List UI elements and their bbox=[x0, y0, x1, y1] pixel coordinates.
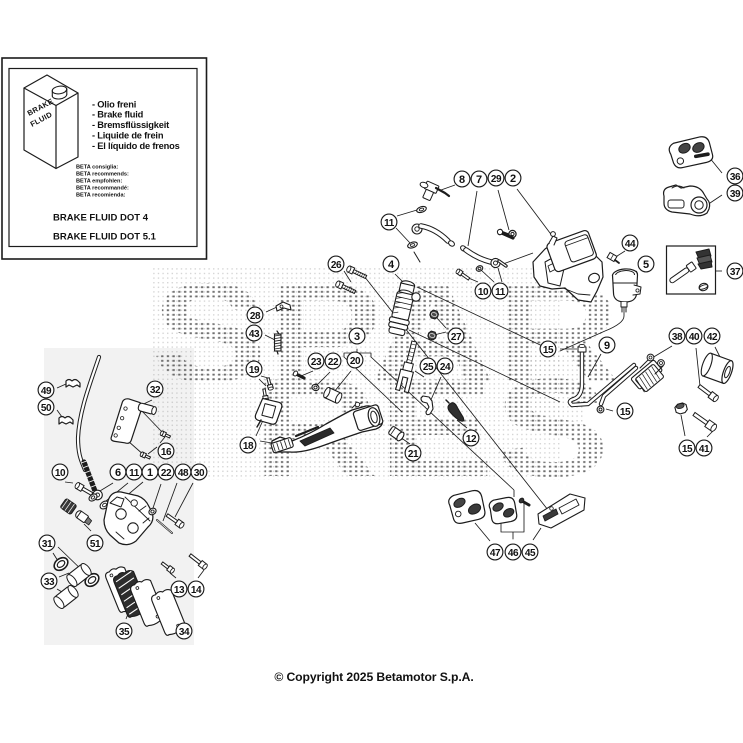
svg-text:21: 21 bbox=[408, 449, 419, 460]
svg-text:20: 20 bbox=[350, 356, 361, 367]
svg-text:43: 43 bbox=[249, 329, 260, 340]
svg-text:37: 37 bbox=[730, 267, 741, 278]
svg-text:10: 10 bbox=[55, 468, 66, 479]
svg-text:30: 30 bbox=[194, 468, 205, 479]
svg-text:11: 11 bbox=[129, 468, 140, 479]
svg-text:2: 2 bbox=[510, 173, 516, 185]
svg-text:BETA consiglia:: BETA consiglia: bbox=[76, 165, 118, 171]
svg-text:49: 49 bbox=[41, 386, 52, 397]
svg-text:38: 38 bbox=[672, 332, 683, 343]
svg-text:9: 9 bbox=[604, 340, 610, 352]
svg-text:- El líquido de frenos: - El líquido de frenos bbox=[92, 141, 180, 151]
svg-text:41: 41 bbox=[699, 444, 710, 455]
svg-text:- Olio freni: - Olio freni bbox=[92, 99, 136, 109]
svg-text:BETA empfohlen:: BETA empfohlen: bbox=[76, 179, 122, 185]
svg-text:11: 11 bbox=[495, 287, 506, 298]
svg-text:36: 36 bbox=[730, 172, 741, 183]
svg-text:22: 22 bbox=[161, 468, 172, 479]
svg-text:© Copyright 2025 Betamotor S.p: © Copyright 2025 Betamotor S.p.A. bbox=[274, 670, 473, 684]
svg-text:14: 14 bbox=[191, 585, 202, 596]
svg-text:18: 18 bbox=[243, 441, 254, 452]
svg-text:46: 46 bbox=[508, 548, 519, 559]
svg-text:39: 39 bbox=[730, 189, 741, 200]
svg-text:25: 25 bbox=[423, 362, 434, 373]
svg-text:1: 1 bbox=[147, 467, 153, 479]
svg-text:3: 3 bbox=[354, 331, 360, 343]
svg-text:15: 15 bbox=[543, 345, 554, 356]
svg-text:33: 33 bbox=[44, 577, 55, 588]
svg-text:29: 29 bbox=[491, 174, 502, 185]
svg-text:- Bremsflüssigkeit: - Bremsflüssigkeit bbox=[92, 120, 169, 130]
svg-text:35: 35 bbox=[119, 627, 130, 638]
svg-text:19: 19 bbox=[249, 365, 260, 376]
svg-text:15: 15 bbox=[682, 444, 693, 455]
svg-text:32: 32 bbox=[150, 385, 161, 396]
svg-text:47: 47 bbox=[490, 548, 501, 559]
svg-text:23: 23 bbox=[311, 357, 322, 368]
svg-text:40: 40 bbox=[689, 332, 700, 343]
svg-text:15: 15 bbox=[620, 407, 631, 418]
svg-text:BRAKE FLUID DOT 5.1: BRAKE FLUID DOT 5.1 bbox=[53, 232, 157, 243]
svg-text:- Brake fluid: - Brake fluid bbox=[92, 110, 144, 120]
svg-text:10: 10 bbox=[478, 287, 489, 298]
svg-text:4: 4 bbox=[388, 259, 395, 271]
svg-text:BETA recommandé:: BETA recommandé: bbox=[76, 185, 129, 191]
svg-text:22: 22 bbox=[328, 357, 339, 368]
svg-text:44: 44 bbox=[625, 239, 636, 250]
svg-text:6: 6 bbox=[115, 467, 121, 479]
svg-text:11: 11 bbox=[384, 218, 395, 229]
svg-text:42: 42 bbox=[707, 332, 718, 343]
svg-text:34: 34 bbox=[179, 627, 190, 638]
svg-text:48: 48 bbox=[178, 468, 189, 479]
svg-text:27: 27 bbox=[451, 332, 462, 343]
svg-text:31: 31 bbox=[42, 539, 53, 550]
svg-text:51: 51 bbox=[90, 539, 101, 550]
svg-text:28: 28 bbox=[250, 311, 261, 322]
svg-text:BETA recommends:: BETA recommends: bbox=[76, 172, 129, 178]
svg-text:- Liquide de frein: - Liquide de frein bbox=[92, 131, 164, 141]
svg-text:45: 45 bbox=[525, 548, 536, 559]
svg-text:8: 8 bbox=[459, 174, 465, 186]
svg-text:16: 16 bbox=[161, 447, 172, 458]
svg-text:50: 50 bbox=[41, 403, 52, 414]
svg-text:26: 26 bbox=[331, 260, 342, 271]
svg-text:7: 7 bbox=[476, 174, 482, 186]
svg-text:12: 12 bbox=[466, 434, 477, 445]
svg-text:5: 5 bbox=[643, 259, 649, 271]
svg-text:24: 24 bbox=[440, 362, 451, 373]
svg-text:BETA recomienda:: BETA recomienda: bbox=[76, 192, 126, 198]
svg-text:13: 13 bbox=[174, 585, 185, 596]
svg-text:BRAKE FLUID DOT 4: BRAKE FLUID DOT 4 bbox=[53, 213, 149, 224]
